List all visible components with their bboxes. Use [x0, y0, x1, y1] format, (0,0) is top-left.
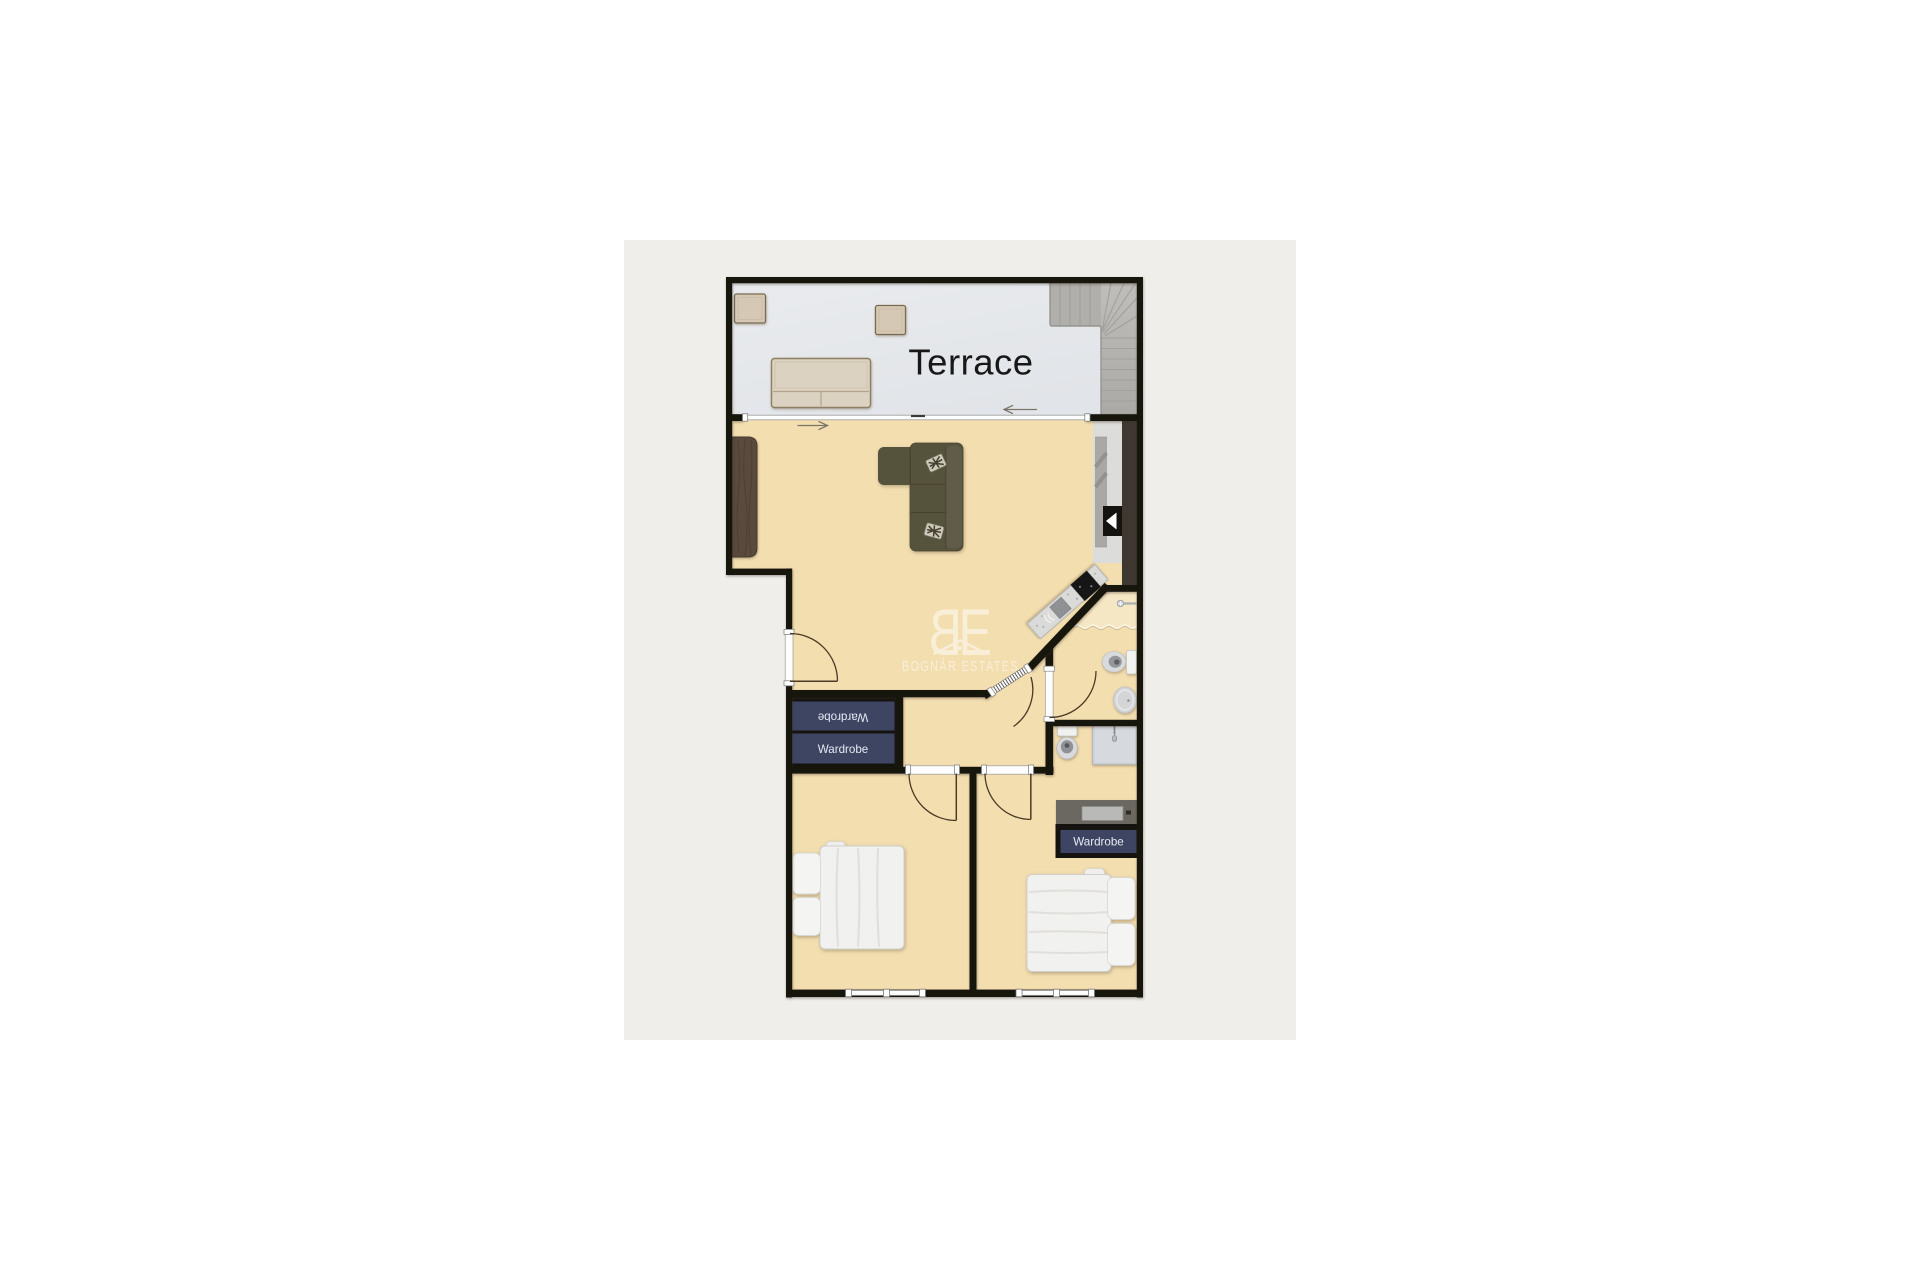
svg-text:Wardrobe: Wardrobe [1073, 836, 1123, 849]
svg-text:Wardrobe: Wardrobe [818, 711, 868, 724]
svg-text:Terrace: Terrace [908, 342, 1033, 383]
svg-text:B: B [929, 595, 963, 669]
svg-text:E: E [959, 595, 993, 669]
svg-text:BOGNÁR ESTATES: BOGNÁR ESTATES [902, 658, 1019, 675]
svg-text:Wardrobe: Wardrobe [818, 743, 868, 756]
